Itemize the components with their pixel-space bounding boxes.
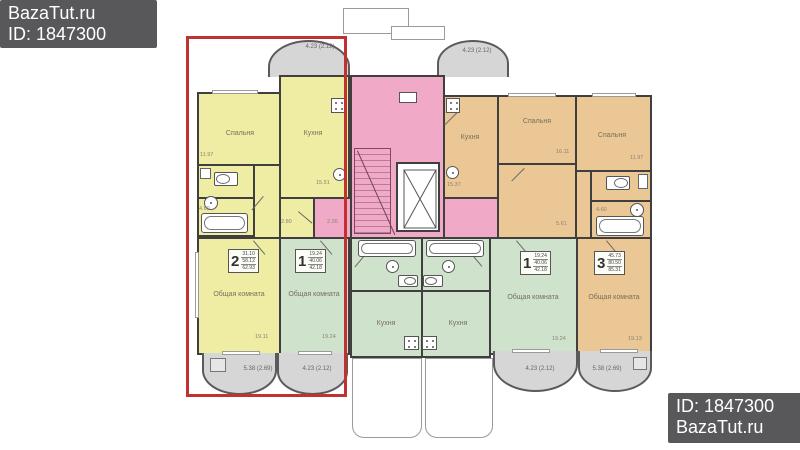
toilet-icon bbox=[606, 176, 630, 190]
kitchen-sink-icon bbox=[446, 166, 459, 179]
stove-icon bbox=[404, 336, 419, 350]
core-corridor bbox=[443, 197, 499, 239]
stove-icon bbox=[446, 98, 460, 113]
living-area-value: 45.73 bbox=[607, 253, 622, 260]
sink-icon bbox=[386, 260, 399, 273]
stove-icon bbox=[422, 336, 437, 350]
room-label-kitchen: Кухня bbox=[449, 320, 468, 327]
bathtub-icon bbox=[596, 216, 644, 236]
window bbox=[592, 93, 636, 97]
living-area-value: 19.24 bbox=[533, 253, 548, 260]
listing-floorplan-image: BazaTut.ru ID: 1847300 ID: 1847300 BazaT… bbox=[0, 0, 800, 450]
entrance-canopy-step bbox=[391, 26, 445, 40]
dim-label: 5.61 bbox=[556, 221, 567, 227]
room-label-bedroom: Спальня bbox=[598, 132, 626, 139]
toilet-icon bbox=[398, 275, 418, 287]
apartment-1-right-stamp: 1 19.24 40.06 42.18 bbox=[520, 251, 551, 275]
watermark-site: BazaTut.ru bbox=[676, 417, 800, 438]
sink-icon bbox=[442, 260, 455, 273]
balcony-window-icon bbox=[633, 357, 647, 370]
dim-label: 4.60 bbox=[596, 207, 607, 213]
bathtub-icon bbox=[358, 240, 416, 257]
highlight-rectangle bbox=[186, 36, 347, 397]
balcony-dim-label: 4.23 (2.12) bbox=[462, 48, 491, 54]
balcony-dim-label: 5.38 (2.69) bbox=[592, 366, 621, 372]
watermark-site: BazaTut.ru bbox=[8, 3, 149, 24]
balcony-door bbox=[600, 349, 638, 353]
room-label-kitchen: Кухня bbox=[461, 134, 480, 141]
dim-label: 19.13 bbox=[628, 336, 642, 342]
watermark-id: ID: 1847300 bbox=[676, 396, 800, 417]
balcony-top-right bbox=[437, 40, 509, 77]
terrace-right bbox=[425, 358, 493, 438]
area-value: 40.06 bbox=[533, 260, 548, 267]
balcony-dim-label: 4.23 (2.12) bbox=[525, 366, 554, 372]
dim-label: 15.37 bbox=[447, 182, 461, 188]
total-area-value: 42.18 bbox=[533, 267, 548, 273]
elevator-icon bbox=[396, 162, 440, 232]
entry-door-icon bbox=[399, 92, 417, 103]
stairs-icon bbox=[354, 148, 391, 234]
terrace-left bbox=[352, 358, 422, 438]
room-label-living: Общая комната bbox=[507, 294, 558, 301]
area-value: 80.50 bbox=[607, 260, 622, 267]
apartment-3-stamp: 3 45.73 80.50 85.31 bbox=[594, 251, 625, 275]
dim-label: 19.24 bbox=[552, 336, 566, 342]
toilet-icon bbox=[423, 275, 443, 287]
apartment-rooms-count: 1 bbox=[523, 255, 533, 272]
watermark-badge-top: BazaTut.ru ID: 1847300 bbox=[0, 0, 157, 48]
watermark-badge-bottom: ID: 1847300 BazaTut.ru bbox=[668, 393, 800, 443]
window bbox=[508, 93, 556, 97]
hall-right-room bbox=[497, 163, 577, 239]
sink-icon bbox=[630, 203, 644, 217]
washer-icon bbox=[638, 174, 648, 189]
room-label-bedroom: Спальня bbox=[523, 118, 551, 125]
dim-label: 16.11 bbox=[556, 149, 569, 155]
total-area-value: 85.31 bbox=[607, 267, 622, 273]
room-label-living: Общая комната bbox=[588, 294, 639, 301]
bathtub-icon bbox=[426, 240, 484, 257]
dim-label: 11.97 bbox=[630, 155, 643, 161]
room-label-kitchen: Кухня bbox=[377, 320, 396, 327]
balcony-door bbox=[512, 349, 550, 353]
watermark-id: ID: 1847300 bbox=[8, 24, 149, 45]
apartment-rooms-count: 3 bbox=[597, 255, 607, 272]
